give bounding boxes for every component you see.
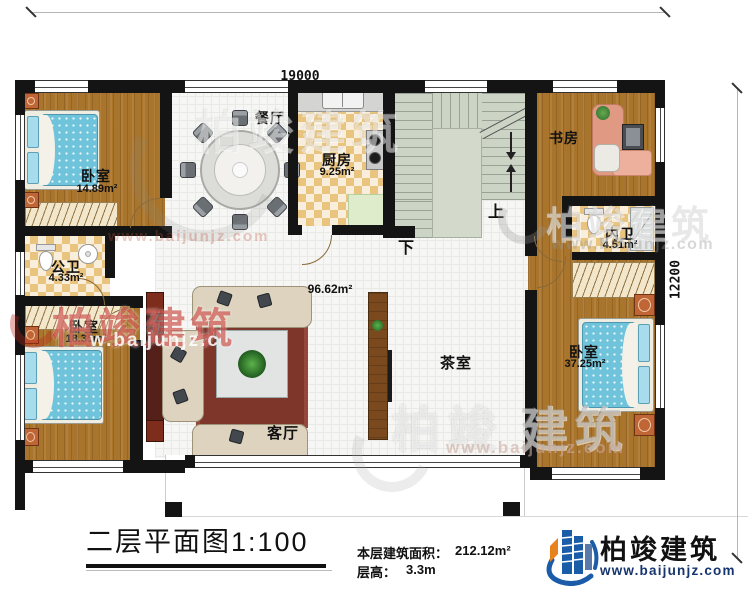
pillow — [27, 116, 39, 148]
pillow — [24, 388, 37, 420]
room-area-kitchen: 9.25m² — [304, 166, 370, 178]
pillow — [638, 366, 650, 404]
hall-area-label: 96.62m² — [294, 282, 366, 296]
window — [553, 80, 617, 93]
wall-segment — [15, 80, 25, 115]
stair-flight-top — [432, 93, 482, 128]
room-label-tea-room: 茶室 — [425, 352, 487, 373]
wall-segment — [130, 340, 143, 462]
window — [655, 108, 665, 162]
desk-plant — [596, 106, 610, 120]
window — [15, 252, 25, 295]
wall-segment — [185, 455, 195, 468]
brand-site: www.baijunjz.com — [600, 563, 736, 578]
window — [15, 115, 25, 180]
room-area-bedroom-top-left: 14.89m² — [62, 183, 132, 195]
speaker — [146, 420, 164, 442]
wall-segment — [487, 80, 553, 93]
wall-segment — [15, 180, 25, 252]
ground-line — [183, 516, 748, 517]
desk-chair — [594, 144, 620, 172]
dimension-line-right — [737, 88, 738, 558]
stair-flight-right — [482, 93, 526, 200]
room-label-study: 书房 — [534, 128, 594, 148]
nightstand — [23, 93, 39, 109]
wall-segment — [15, 460, 33, 473]
title-underline — [86, 564, 326, 568]
room-area-public-bath: 4.33m² — [33, 272, 99, 284]
floor-area-value: 212.12m² — [455, 543, 511, 558]
nightstand — [23, 192, 39, 208]
window — [33, 460, 123, 473]
nightstand — [634, 414, 655, 436]
kitchen-island — [348, 194, 384, 226]
watermark-site-text: www.baijunjz.com — [552, 236, 714, 254]
balcony-post — [503, 502, 520, 517]
stair-arrow-up-head — [506, 152, 516, 160]
watermark-site-text: www.baijunjz.com — [108, 228, 269, 245]
balcony-post — [165, 502, 182, 517]
room-label-living: 客厅 — [252, 422, 314, 443]
stair-landing — [432, 128, 482, 238]
stair-down-label: 下 — [398, 234, 414, 258]
wardrobe-right — [572, 262, 655, 298]
pillow — [638, 324, 650, 362]
dimension-width-label: 19000 — [268, 69, 332, 84]
wall-segment — [655, 80, 665, 108]
wall-segment — [640, 467, 665, 480]
window — [425, 80, 487, 93]
dimension-line-top — [30, 12, 666, 13]
monitor-screen — [626, 128, 640, 146]
watermark-site-fragment: w.baijunjz.c — [90, 330, 220, 352]
pillow — [27, 152, 39, 184]
stair-arrow-down — [510, 170, 512, 192]
sheet-title: 二层平面图1:100 — [86, 520, 309, 559]
window — [552, 467, 640, 480]
brand-logo-icon — [542, 524, 600, 586]
wall-segment — [288, 225, 302, 235]
stair-arrow-up — [510, 132, 512, 154]
dimension-height-label: 12200 — [669, 248, 684, 312]
table-plant — [238, 350, 266, 378]
window — [15, 355, 25, 440]
window — [655, 325, 665, 408]
toilet-tank — [36, 244, 56, 251]
pillow — [24, 352, 37, 384]
stair-arrow-down-head — [506, 164, 516, 172]
nightstand — [634, 294, 655, 316]
partition-decor — [372, 320, 383, 331]
floor-area-label: 本层建筑面积： — [357, 543, 448, 562]
brand-logo-svg — [542, 524, 600, 586]
room-area-bedroom-right: 37.25m² — [549, 358, 621, 370]
window — [35, 80, 88, 93]
brand-name: 柏竣建筑 — [600, 528, 720, 567]
wall-segment — [15, 440, 25, 510]
watermark-site-text: www.baijunjz.com — [446, 438, 625, 458]
watermark-brand-text: 柏竣建筑 — [195, 96, 403, 162]
wall-segment — [530, 467, 552, 480]
floor-height-label: 层高： — [357, 562, 396, 581]
floor-height-value: 3.3m — [406, 562, 436, 577]
floor-plan-sheet: 卧室 14.89m² 公卫 4.33m² 卧室 18.35m² 餐厅 厨房 9.… — [0, 0, 750, 596]
title-underline-thin — [86, 570, 332, 571]
